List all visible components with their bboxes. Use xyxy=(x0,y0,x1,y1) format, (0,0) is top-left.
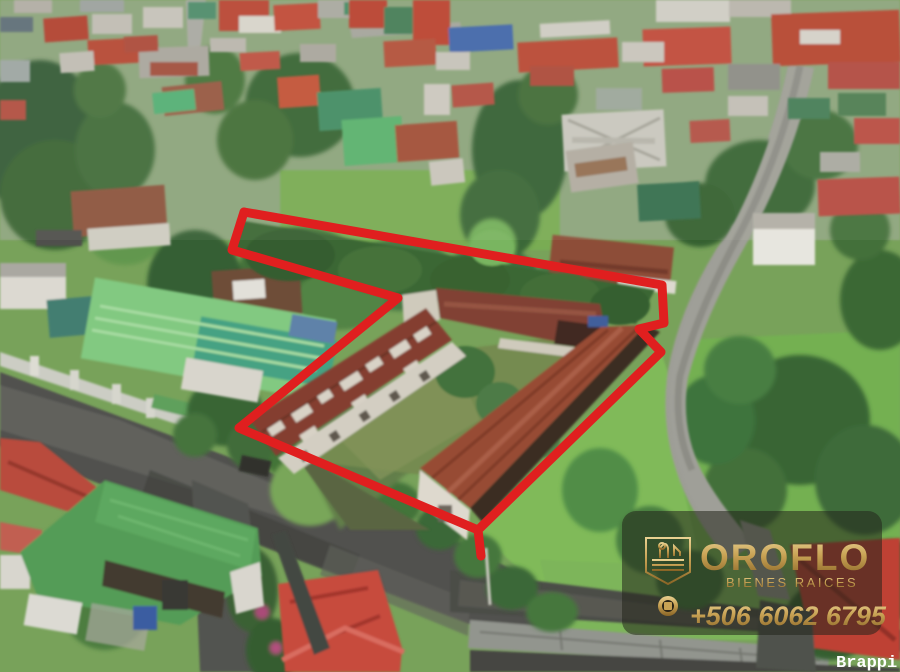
svg-text:Brappi: Brappi xyxy=(836,654,897,672)
svg-text:OROFLO: OROFLO xyxy=(700,537,870,578)
svg-text:BIENES RAICES: BIENES RAICES xyxy=(726,575,858,590)
svg-text:+506 6062 6795: +506 6062 6795 xyxy=(690,601,887,631)
